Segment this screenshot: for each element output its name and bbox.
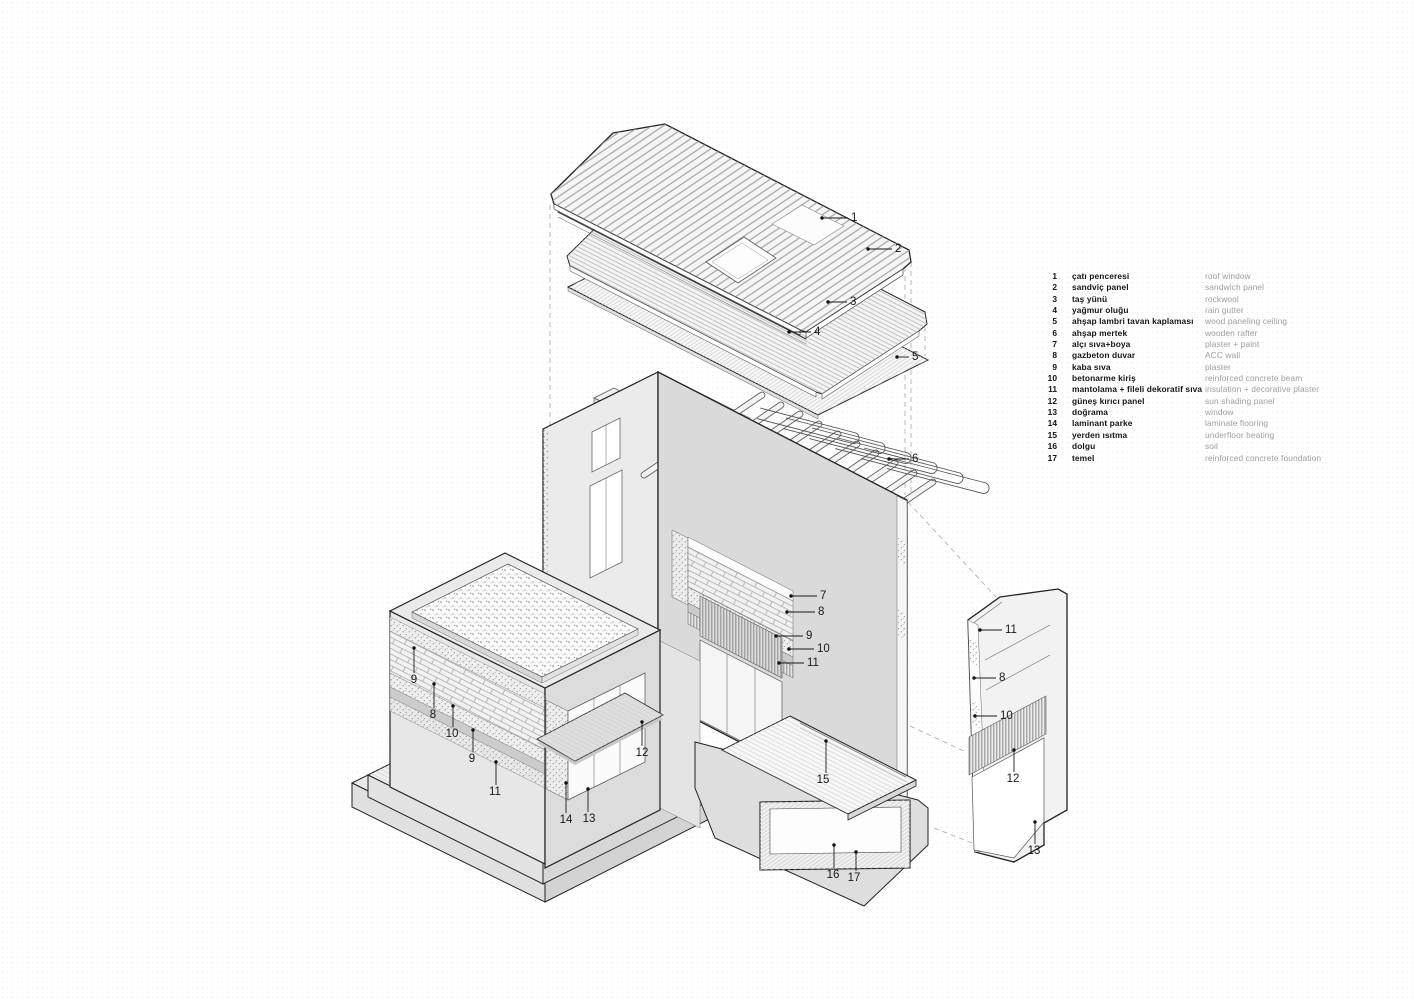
legend-item-number: 11 [1040,384,1057,395]
legend-item-number: 14 [1040,418,1057,429]
callout-dot [824,739,827,742]
legend-item-turkish: yerden ısıtma [1072,430,1205,441]
callout-dot [564,781,567,784]
legend-item-number: 6 [1040,328,1057,339]
callout-number: 8 [999,672,1005,684]
callout-number: 13 [1028,845,1041,857]
entry-recess [658,640,700,828]
legend-item-number: 9 [1040,362,1057,373]
callout-number: 10 [446,728,459,740]
callout-number: 1 [851,212,857,224]
legend-item-english: wood paneling ceiling [1205,316,1287,327]
legend-item-turkish: ahşap mertek [1072,328,1205,339]
legend-item-english: roof window [1205,271,1251,282]
callout-number: 15 [817,774,830,786]
callout-dot [494,760,497,763]
legend-item-english: reinforced concrete beam [1205,373,1302,384]
legend-row: 1çatı penceresiroof window [1040,271,1340,282]
callout-dot [820,216,823,219]
callout-dot [826,300,829,303]
legend-item-number: 4 [1040,305,1057,316]
legend-item-english: underfloor heating [1205,430,1274,441]
callout-number: 9 [806,630,812,642]
legend-item-english: plaster [1205,362,1231,373]
facade-window-lower [590,470,622,578]
legend-item-number: 8 [1040,350,1057,361]
foundation-cut [760,800,910,870]
callout-number: 10 [1000,710,1013,722]
legend-row: 9kaba sıvaplaster [1040,362,1340,373]
callout-dot [471,728,474,731]
callout-number: 11 [807,657,819,669]
callout-dot [1012,748,1015,751]
legend-item-turkish: ahşap lambri tavan kaplaması [1072,316,1205,327]
legend-item-number: 13 [1040,407,1057,418]
legend-item-turkish: gazbeton duvar [1072,350,1205,361]
callout-number: 4 [814,326,821,338]
callout-dot [640,720,643,723]
legend-item-turkish: doğrama [1072,407,1205,418]
callout-number: 10 [817,643,830,655]
roof-stack [551,124,928,419]
legend-row: 16dolgusoil [1040,441,1340,452]
legend-item-number: 7 [1040,339,1057,350]
callout-dot [586,787,589,790]
legend-row: 15yerden ısıtmaunderfloor heating [1040,430,1340,441]
legend: 1çatı penceresiroof window2sandviç panel… [1040,271,1340,464]
legend-row: 8gazbeton duvarACC wall [1040,350,1340,361]
legend-row: 12güneş kırıcı panelsun shading panel [1040,396,1340,407]
callout-dot [972,676,975,679]
callout-dot [787,330,790,333]
legend-item-english: wooden rafter [1205,328,1258,339]
callout-dot [432,682,435,685]
legend-row: 6ahşap mertekwooden rafter [1040,328,1340,339]
legend-item-english: reinforced concrete foundation [1205,453,1321,464]
callout-dot [785,610,788,613]
callout-number: 17 [848,872,861,884]
legend-item-turkish: güneş kırıcı panel [1072,396,1205,407]
legend-item-number: 5 [1040,316,1057,327]
callout-dot [895,355,898,358]
legend-row: 5ahşap lambri tavan kaplamasıwood paneli… [1040,316,1340,327]
legend-item-number: 2 [1040,282,1057,293]
legend-item-english: soil [1205,441,1218,452]
callout-dot [866,247,869,250]
callout-number: 14 [560,814,573,826]
legend-row: 14laminant parkelaminate flooring [1040,418,1340,429]
legend-item-turkish: betonarme kiriş [1072,373,1205,384]
callout-dot [854,850,857,853]
callout-number: 9 [411,674,417,686]
callout-dot [787,647,790,650]
callout-dot [978,628,981,631]
legend-item-turkish: dolgu [1072,441,1205,452]
legend-item-turkish: alçı sıva+boya [1072,339,1205,350]
legend-row: 3taş yünürockwool [1040,294,1340,305]
callout-dot [887,457,890,460]
legend-row: 4yağmur oluğurain gutter [1040,305,1340,316]
callout-dot [451,704,454,707]
legend-item-turkish: çatı penceresi [1072,271,1205,282]
callout-number: 6 [912,453,918,465]
legend-item-turkish: kaba sıva [1072,362,1205,373]
legend-row: 2sandviç panelsandwich panel [1040,282,1340,293]
legend-item-turkish: laminant parke [1072,418,1205,429]
legend-row: 10betonarme kirişreinforced concrete bea… [1040,373,1340,384]
legend-row: 11mantolama + fileli dekoratif sıvainsul… [1040,384,1340,395]
legend-item-english: ACC wall [1205,350,1240,361]
legend-item-turkish: sandviç panel [1072,282,1205,293]
callout-number: 7 [820,590,826,602]
callout-number: 3 [850,296,856,308]
callout-number: 5 [912,351,918,363]
legend-item-english: rain gutter [1205,305,1244,316]
legend-item-number: 10 [1040,373,1057,384]
legend-item-turkish: mantolama + fileli dekoratif sıva [1072,384,1205,395]
legend-item-turkish: yağmur oluğu [1072,305,1205,316]
callout-dot [777,661,780,664]
callout-dot [1033,820,1036,823]
legend-item-number: 3 [1040,294,1057,305]
callout-number: 11 [489,786,501,798]
callout-dot [774,634,777,637]
callout-dot [973,714,976,717]
callout-number: 8 [818,606,824,618]
callout-number: 9 [469,753,475,765]
callout-dot [832,843,835,846]
page: { "title": "exploded axonometric constru… [0,0,1414,1000]
legend-item-number: 1 [1040,271,1057,282]
legend-row: 13doğramawindow [1040,407,1340,418]
legend-item-english: laminate flooring [1205,418,1268,429]
legend-item-english: insulation + decorative plaster [1205,384,1319,395]
legend-item-number: 15 [1040,430,1057,441]
legend-item-english: window [1205,407,1234,418]
legend-item-number: 12 [1040,396,1057,407]
legend-item-english: sandwich panel [1205,282,1264,293]
callout-dot [412,646,415,649]
legend-item-english: rockwool [1205,294,1239,305]
callout-number: 13 [583,813,596,825]
legend-item-number: 16 [1040,441,1057,452]
legend-item-turkish: taş yünü [1072,294,1205,305]
legend-item-english: plaster + paint [1205,339,1259,350]
callout-number: 12 [636,747,649,759]
callout-number: 12 [1007,773,1020,785]
callout-dot [789,594,792,597]
legend-row: 7alçı sıva+boyaplaster + paint [1040,339,1340,350]
callout-number: 16 [827,869,840,881]
legend-item-english: sun shading panel [1205,396,1275,407]
callout-number: 11 [1005,624,1017,636]
legend-item-number: 17 [1040,453,1057,464]
axonometric-drawing: 1234567891011981091112141315161711810121… [0,0,1414,1000]
callout-number: 2 [895,243,901,255]
callout-number: 8 [430,709,436,721]
legend-item-turkish: temel [1072,453,1205,464]
legend-row: 17temelreinforced concrete foundation [1040,453,1340,464]
